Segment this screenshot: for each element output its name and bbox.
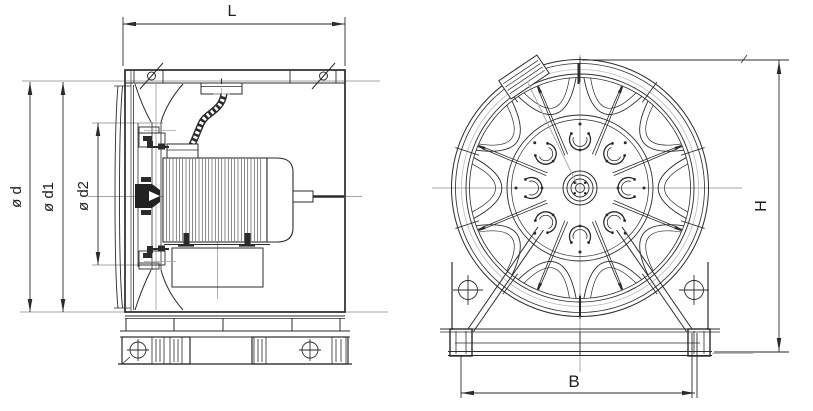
- flexible-conduit-cable: [191, 94, 224, 147]
- dimension-dia-d2: ø d2: [75, 123, 98, 265]
- label-dia-d2: ø d2: [75, 181, 92, 211]
- label-L: L: [228, 3, 237, 20]
- vibration-isolators: [152, 337, 346, 364]
- side-view: L ø d ø d1 ø d2: [8, 3, 388, 364]
- dimension-dia-d1: ø d1: [40, 82, 63, 312]
- dimension-L: L: [123, 3, 345, 66]
- motor-shaft: [293, 191, 313, 202]
- label-dia-d1: ø d1: [40, 182, 57, 212]
- label-H: H: [753, 200, 770, 212]
- dimension-dia-d: ø d: [8, 82, 30, 312]
- front-view: H B: [432, 55, 789, 398]
- label-B: B: [568, 372, 579, 391]
- electric-motor: [163, 144, 344, 287]
- blade-clamp-bottom: [139, 246, 176, 270]
- label-dia-d: ø d: [8, 186, 25, 208]
- motor-end-cap: [267, 158, 293, 242]
- motor-terminal-box: [167, 144, 198, 158]
- fan-technical-drawing: L ø d ø d1 ø d2: [0, 0, 813, 411]
- dim-arrows: [28, 22, 782, 396]
- lifting-lug-marks: [140, 63, 335, 89]
- side-base-frame: [118, 316, 352, 364]
